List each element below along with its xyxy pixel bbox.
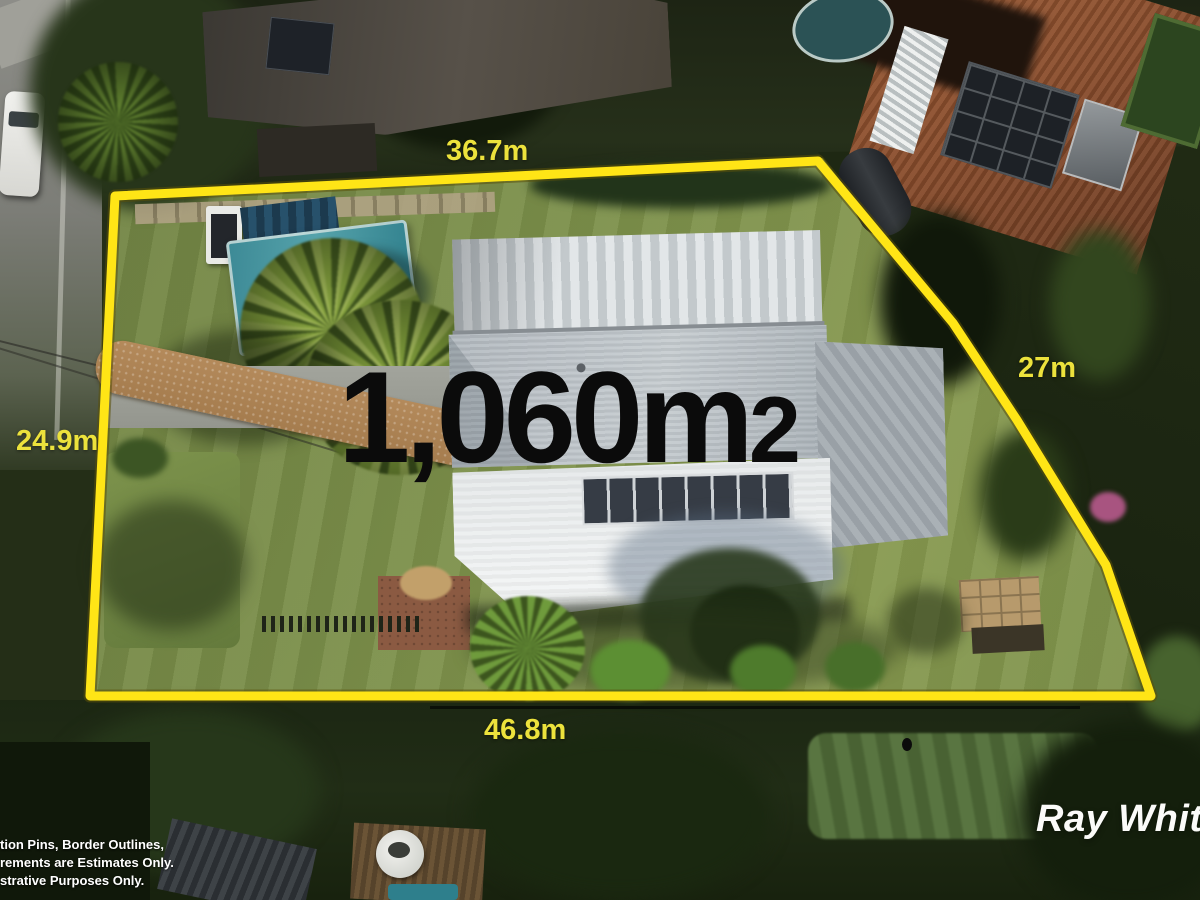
land-area-value: 1,060m [338,344,749,490]
dimension-top: 36.7m [446,135,528,168]
disclaimer-line: strative Purposes Only. [0,872,174,890]
dimension-left: 24.9m [16,425,98,458]
land-area-label: 1,060m2 [338,352,799,482]
disclaimer-text: tion Pins, Border Outlines, rements are … [0,836,174,890]
aerial-photo: 36.7m 27m 24.9m 46.8m 1,060m2 tion Pins,… [0,0,1200,900]
brand-watermark: Ray White [1036,798,1200,841]
disclaimer-line: rements are Estimates Only. [0,854,174,872]
dimension-right: 27m [1018,352,1076,385]
dimension-bottom: 46.8m [484,714,566,747]
disclaimer-line: tion Pins, Border Outlines, [0,836,174,854]
land-area-exponent: 2 [749,377,799,482]
